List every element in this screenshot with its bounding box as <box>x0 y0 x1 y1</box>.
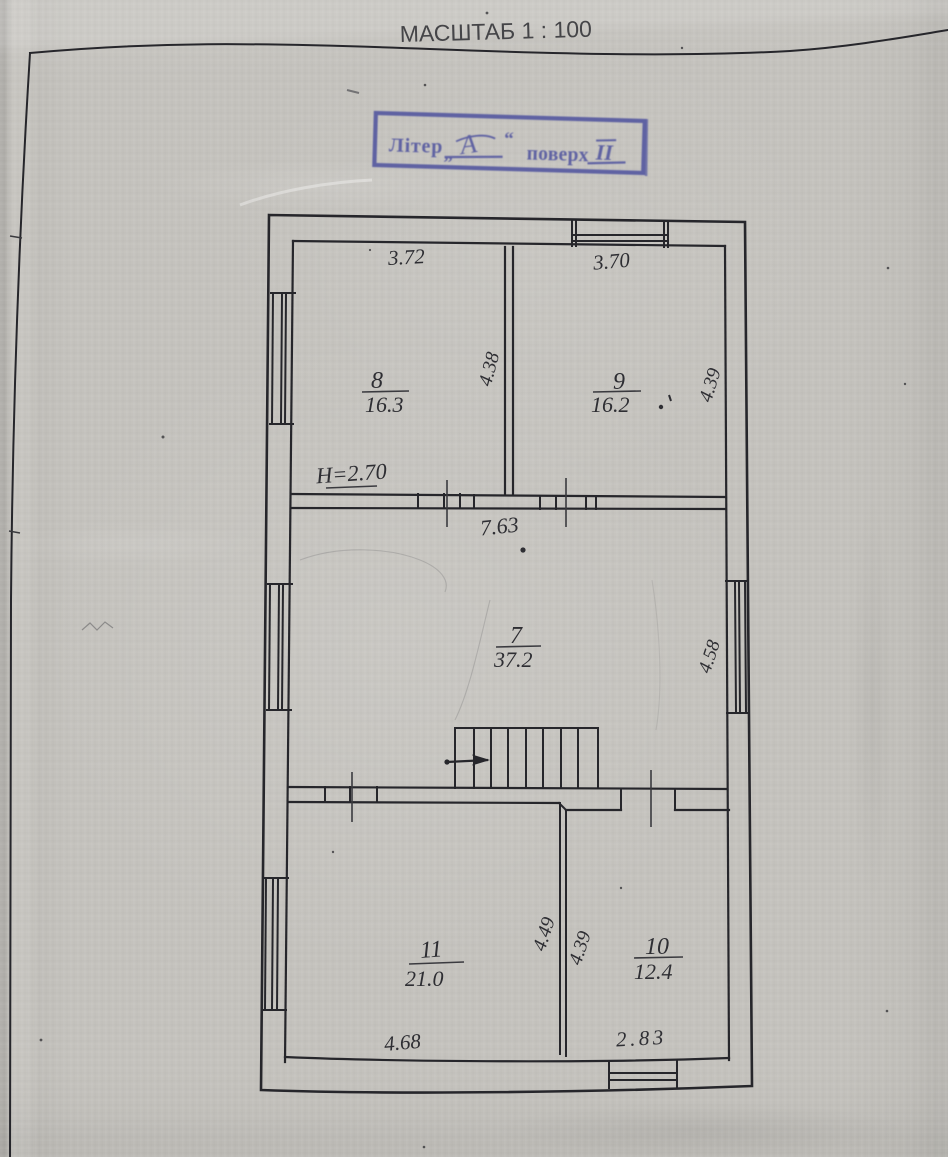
svg-text:4.39: 4.39 <box>696 366 726 405</box>
svg-text:4.39: 4.39 <box>565 929 596 968</box>
svg-text:3.72: 3.72 <box>386 244 425 270</box>
svg-text:11: 11 <box>419 936 443 963</box>
svg-text:Літер: Літер <box>389 134 444 158</box>
svg-text:16.3: 16.3 <box>365 392 404 417</box>
svg-text:4.68: 4.68 <box>383 1029 422 1056</box>
svg-text:37.2: 37.2 <box>493 647 533 672</box>
svg-text:поверх: поверх <box>526 144 589 167</box>
svg-text:8: 8 <box>371 368 383 394</box>
svg-text:4.38: 4.38 <box>475 350 504 389</box>
svg-text:12.4: 12.4 <box>634 959 673 984</box>
svg-text:МАСШТАБ 1 : 100: МАСШТАБ 1 : 100 <box>399 16 592 47</box>
svg-text:16.2: 16.2 <box>591 392 630 417</box>
svg-text:4.58: 4.58 <box>695 637 725 676</box>
svg-text:10: 10 <box>645 934 669 960</box>
svg-text:„: „ <box>443 143 453 164</box>
svg-text:3.70: 3.70 <box>591 248 631 275</box>
svg-text:4.49: 4.49 <box>529 915 560 954</box>
svg-text:7.63: 7.63 <box>479 512 520 541</box>
svg-text:ІІ: ІІ <box>594 140 614 166</box>
svg-text:2.83: 2.83 <box>615 1025 667 1052</box>
svg-text:“: “ <box>504 129 514 150</box>
svg-text:21.0: 21.0 <box>405 966 444 991</box>
svg-text:7: 7 <box>510 623 523 649</box>
svg-text:А: А <box>456 128 479 160</box>
svg-text:H=2.70: H=2.70 <box>314 458 387 488</box>
